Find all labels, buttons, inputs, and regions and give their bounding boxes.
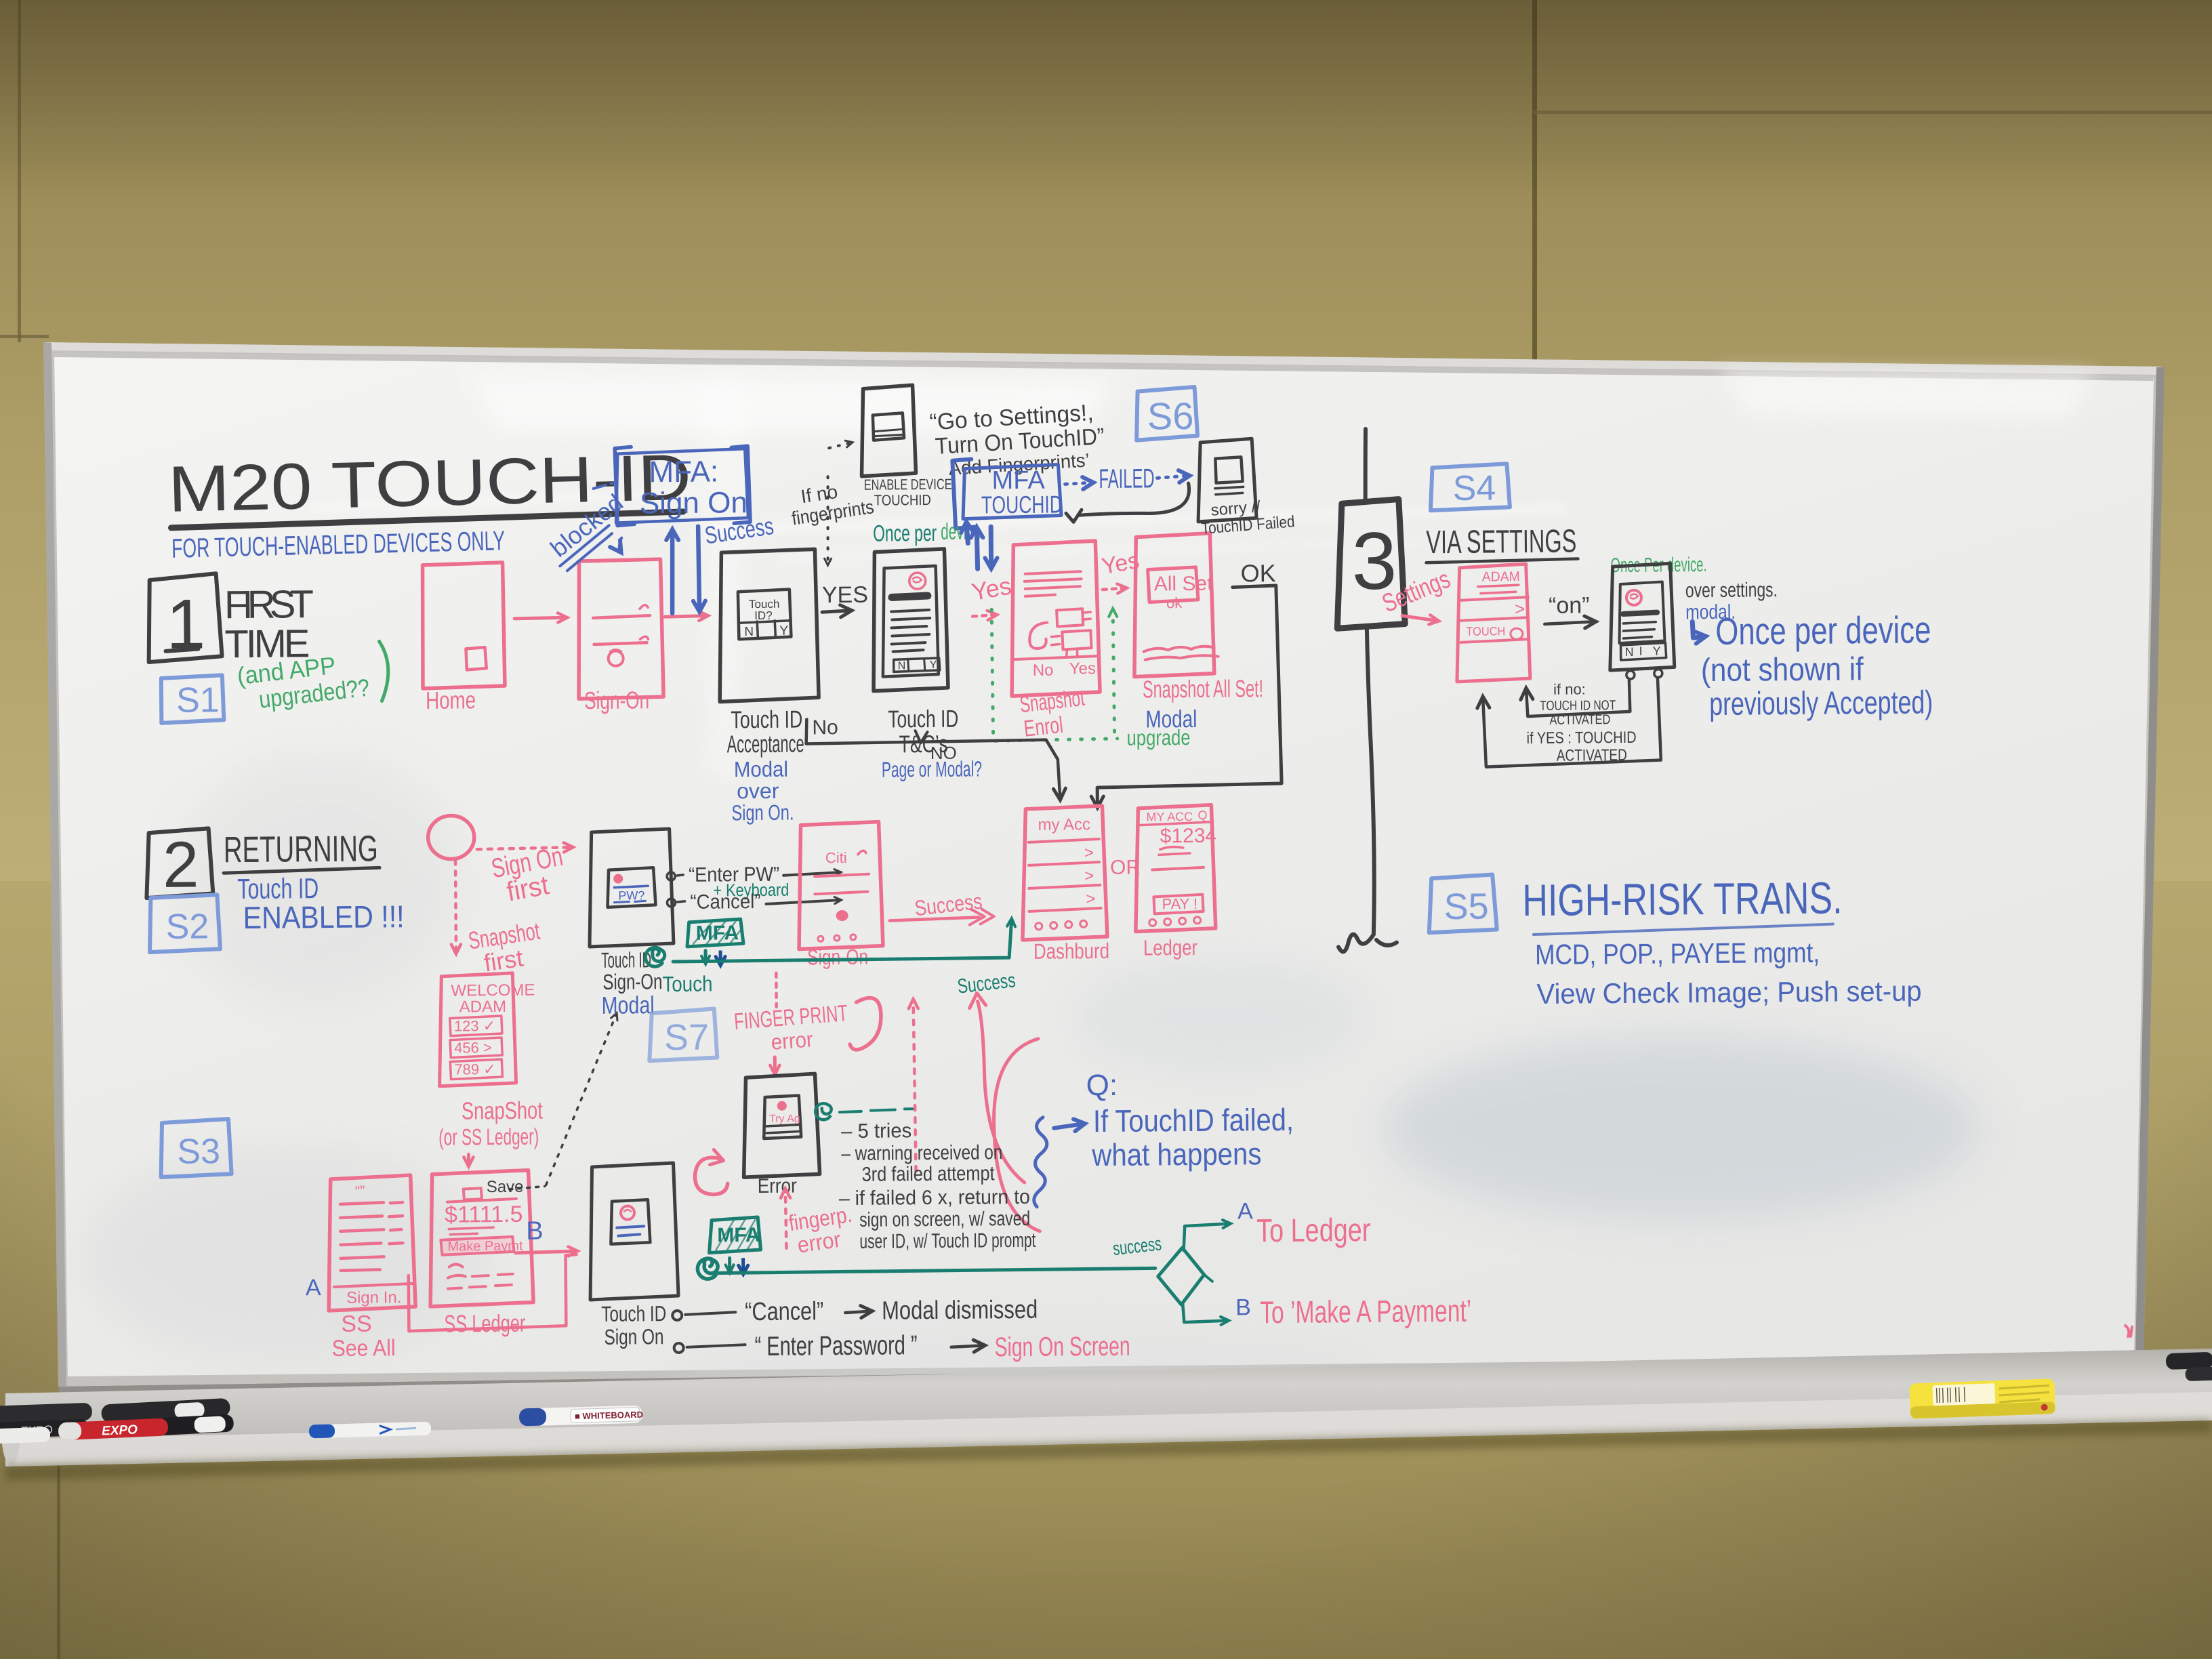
svg-text:S7: S7 xyxy=(664,1017,710,1059)
svg-text:N: N xyxy=(1625,645,1634,659)
svg-text:Sign In.: Sign In. xyxy=(346,1288,402,1307)
svg-text:Once per device: Once per device xyxy=(1715,608,1931,652)
svg-text:To ’Make A Payment’: To ’Make A Payment’ xyxy=(1260,1293,1471,1330)
svg-text:Citi: Citi xyxy=(825,849,847,866)
svg-text:Sign-On: Sign-On xyxy=(807,945,868,970)
svg-text:Modal: Modal xyxy=(734,757,788,782)
svg-text:user ID, w/ Touch ID prompt: user ID, w/ Touch ID prompt xyxy=(859,1229,1036,1253)
svg-text:Error: Error xyxy=(758,1175,797,1197)
svg-text:EXPO: EXPO xyxy=(102,1422,138,1438)
svg-text:2: 2 xyxy=(163,828,199,901)
svg-text:SS: SS xyxy=(341,1311,372,1337)
svg-text:Home: Home xyxy=(426,686,476,714)
svg-text:View Check Image; Push set-up: View Check Image; Push set-up xyxy=(1536,975,1921,1010)
svg-text:$1111.5: $1111.5 xyxy=(445,1202,523,1228)
svg-text:B: B xyxy=(526,1217,544,1246)
svg-text:Touch ID: Touch ID xyxy=(601,1301,666,1326)
svg-text:To Ledger: To Ledger xyxy=(1256,1212,1370,1249)
svg-text:S1: S1 xyxy=(176,680,220,720)
svg-text:A: A xyxy=(306,1275,321,1300)
svg-text:I: I xyxy=(1639,644,1643,658)
svg-text:Y: Y xyxy=(779,624,788,638)
svg-text:SS Ledger: SS Ledger xyxy=(444,1309,525,1338)
svg-text:S4: S4 xyxy=(1452,468,1496,508)
svg-text:– if failed 6 x, return to: – if failed 6 x, return to xyxy=(839,1186,1030,1210)
svg-text:Touch: Touch xyxy=(662,972,712,997)
svg-text:Try Ag: Try Ag xyxy=(769,1113,800,1125)
svg-text:S5: S5 xyxy=(1443,886,1489,928)
svg-text:>: > xyxy=(1086,890,1095,908)
svg-text:■ WHITEBOARD: ■ WHITEBOARD xyxy=(575,1410,643,1422)
svg-text:error: error xyxy=(770,1027,814,1054)
svg-text:ENABLED !!!: ENABLED !!! xyxy=(243,899,404,935)
svg-text:No: No xyxy=(1033,661,1054,680)
svg-text:FIRST: FIRST xyxy=(224,582,314,627)
svg-text:No: No xyxy=(812,716,838,739)
svg-text:ACTIVATED: ACTIVATED xyxy=(1557,746,1627,765)
svg-text:$1234: $1234 xyxy=(1160,825,1217,848)
svg-text:Acceptance: Acceptance xyxy=(726,729,804,758)
svg-text:RETURNING: RETURNING xyxy=(224,828,378,870)
svg-text:over: over xyxy=(737,779,779,803)
svg-text:– warning received on: – warning received on xyxy=(841,1141,1002,1165)
svg-text:Snapshot All Set!: Snapshot All Set! xyxy=(1143,674,1263,703)
svg-text:Dashburd: Dashburd xyxy=(1033,939,1109,964)
svg-text:Ledger: Ledger xyxy=(1143,935,1198,960)
svg-text:Modal dismissed: Modal dismissed xyxy=(882,1296,1038,1326)
svg-text:ENABLE DEVICE: ENABLE DEVICE xyxy=(864,476,952,493)
svg-text:Save: Save xyxy=(487,1178,524,1196)
svg-text:S6: S6 xyxy=(1147,394,1194,438)
svg-text:if no:: if no: xyxy=(1553,680,1586,697)
svg-text:“Cancel”: “Cancel” xyxy=(745,1297,823,1326)
svg-text:PAY !: PAY ! xyxy=(1162,895,1197,912)
svg-text:ID?: ID? xyxy=(754,609,773,622)
svg-text:MCD, POP., PAYEE mgmt,: MCD, POP., PAYEE mgmt, xyxy=(1535,937,1820,970)
svg-text:(not shown if: (not shown if xyxy=(1701,651,1864,689)
svg-text:“Cancel”: “Cancel” xyxy=(690,890,760,914)
svg-text:123 ✓: 123 ✓ xyxy=(454,1017,495,1034)
svg-text:MY ACC: MY ACC xyxy=(1146,810,1193,824)
svg-text:previously Accepted): previously Accepted) xyxy=(1709,684,1933,722)
svg-text:ok: ok xyxy=(1166,594,1183,611)
svg-text:S3: S3 xyxy=(177,1132,220,1171)
svg-text:Q: Q xyxy=(1197,808,1207,822)
svg-text:Y: Y xyxy=(930,659,937,671)
svg-text:MFA: MFA xyxy=(717,1224,760,1246)
svg-text:TOUCHID: TOUCHID xyxy=(874,491,931,509)
svg-text:ADAM: ADAM xyxy=(459,998,507,1017)
svg-text:– 5 tries: – 5 tries xyxy=(841,1120,912,1143)
svg-text:S2: S2 xyxy=(165,907,209,946)
svg-text:VIA SETTINGS: VIA SETTINGS xyxy=(1426,524,1576,561)
svg-text:Modal: Modal xyxy=(1145,705,1197,733)
svg-text:“on”: “on” xyxy=(1549,592,1590,618)
svg-text:Touch ID: Touch ID xyxy=(888,705,958,733)
svg-text:See All: See All xyxy=(331,1335,395,1361)
svg-text:3rd failed attempt: 3rd failed attempt xyxy=(861,1162,995,1186)
svg-text:OK: OK xyxy=(1241,559,1276,587)
svg-text:MFA: MFA xyxy=(696,922,739,944)
svg-text:456 >: 456 > xyxy=(454,1039,492,1056)
svg-text:789 ✓: 789 ✓ xyxy=(454,1061,495,1078)
svg-text:Make Paymt: Make Paymt xyxy=(447,1239,523,1254)
svg-text:ADAM: ADAM xyxy=(1482,569,1520,584)
svg-text:SnapShot: SnapShot xyxy=(462,1097,543,1125)
svg-text:what happens: what happens xyxy=(1091,1136,1261,1172)
svg-text:Enrol: Enrol xyxy=(1023,712,1065,742)
svg-text:Sign On.: Sign On. xyxy=(731,800,794,825)
svg-text:Touch ID: Touch ID xyxy=(601,947,651,972)
svg-text:N: N xyxy=(744,625,754,639)
svg-text:TOUCH ID NOT: TOUCH ID NOT xyxy=(1540,698,1616,714)
svg-text:Yes: Yes xyxy=(1069,659,1096,678)
svg-text:If TouchID failed,: If TouchID failed, xyxy=(1093,1102,1294,1139)
svg-text:sign on screen, w/ saved: sign on screen, w/ saved xyxy=(859,1208,1030,1231)
svg-text:>: > xyxy=(1515,598,1525,619)
svg-text:>: > xyxy=(1084,844,1094,862)
svg-text:“”: “” xyxy=(355,1183,365,1200)
svg-text:Q:: Q: xyxy=(1086,1069,1118,1102)
svg-text:YES: YES xyxy=(822,582,868,609)
svg-text:Modal: Modal xyxy=(601,991,654,1019)
svg-text:A: A xyxy=(1237,1198,1253,1224)
svg-text:Sign On: Sign On xyxy=(640,486,747,520)
svg-text:HIGH-RISK TRANS.: HIGH-RISK TRANS. xyxy=(1522,872,1843,925)
svg-text:NO: NO xyxy=(930,743,957,763)
svg-text:Sign On Screen: Sign On Screen xyxy=(994,1332,1130,1363)
svg-text:“ Enter Password ”: “ Enter Password ” xyxy=(754,1330,917,1361)
svg-text:Sign On: Sign On xyxy=(604,1324,663,1349)
svg-text:>: > xyxy=(1084,867,1094,885)
svg-text:N: N xyxy=(898,660,906,672)
svg-text:if YES : TOUCHID: if YES : TOUCHID xyxy=(1526,729,1636,747)
svg-text:(or SS Ledger): (or SS Ledger) xyxy=(438,1124,539,1151)
svg-text:MFA:: MFA: xyxy=(649,455,718,489)
svg-text:B: B xyxy=(1235,1294,1251,1320)
svg-text:Once per: Once per xyxy=(873,520,937,547)
svg-text:FAILED: FAILED xyxy=(1099,464,1154,494)
svg-text:TOUCHID: TOUCHID xyxy=(981,490,1063,518)
svg-text:over settings.: over settings. xyxy=(1685,579,1778,602)
svg-text:my Acc: my Acc xyxy=(1038,815,1090,834)
svg-text:Y: Y xyxy=(1653,644,1661,658)
svg-text:ACTIVATED: ACTIVATED xyxy=(1549,712,1610,728)
svg-text:All Set: All Set xyxy=(1154,573,1214,596)
svg-text:Sign-On: Sign-On xyxy=(584,686,649,714)
svg-text:TOUCH: TOUCH xyxy=(1466,624,1505,638)
